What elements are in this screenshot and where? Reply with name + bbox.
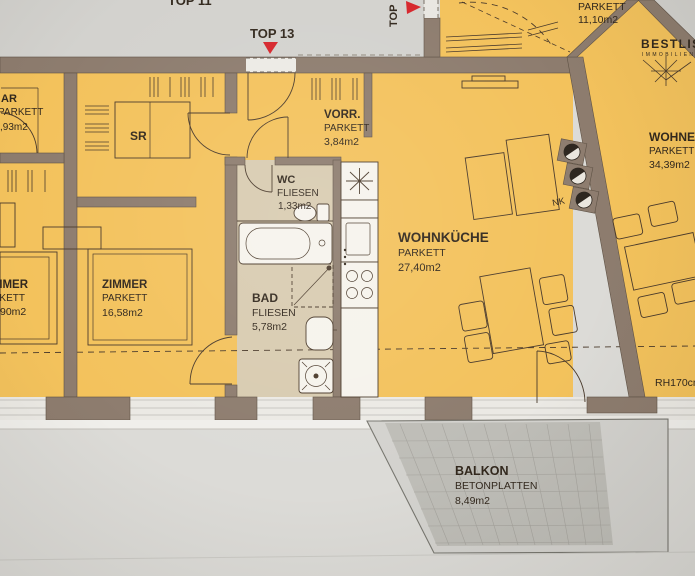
neighbor-area-label: 11,10m2 [578,14,618,26]
washbasin [306,317,337,350]
wall-bad-kitchen [333,160,341,397]
watermark-brand: BESTLIST [641,37,695,51]
zimmer-left-area-label: 90m2 [0,306,26,318]
wohnen-floor-label: PARKETT [649,146,694,157]
wall-ar-bottom [0,153,64,163]
kitchen-sink [341,218,378,262]
wall-sr-bottom [77,197,196,207]
top11-label: TOP 11 [168,0,212,8]
ar-name-label: AR [1,93,17,105]
corridor-area [0,0,424,57]
facade-pier [313,397,360,420]
wohnkueche-area-label: 27,40m2 [398,262,441,274]
bad-name-label: BAD [252,291,278,305]
watermark-sub: IMMOBILIEN [642,52,695,58]
entrance-threshold-side [424,0,438,18]
zimmer-name-label: ZIMMER [102,279,148,291]
zimmer-left-floor-label: PARKETT [0,293,25,304]
facade-pier [215,397,257,420]
bathtub [239,223,332,264]
top13-label: TOP 13 [250,26,294,41]
washing-machine [299,359,333,393]
wc-area-label: 1,33m2 [278,201,312,212]
kitchen-counter [341,162,378,397]
balkon-name-label: BALKON [455,464,508,478]
vorr-area-label: 3,84m2 [324,136,359,148]
vorr-floor-label: PARKETT [324,123,369,134]
top-side-label: TOP [388,5,400,27]
wohnen-area-label: 34,39m2 [649,159,690,171]
balkon-area-label: 8,49m2 [455,495,490,507]
wall-sr-right-upper [225,73,237,113]
facade-pier [425,397,472,420]
wall-corridor-end [424,18,440,57]
wall-wc-top-right [275,157,341,165]
bad-floor-label: FLIESEN [252,307,296,319]
entrance-threshold-top13 [246,58,296,72]
vorr-name-label: VORR. [324,109,360,121]
wall-left-column [64,73,77,397]
zimmer-floor-label: PARKETT [102,293,147,304]
kitchen-stove [341,262,378,308]
facade-pier [587,397,657,413]
parapet-height-label: RH170cm [655,377,695,389]
ar-floor-label: PARKETT [0,107,43,118]
floorplan-photo: TOP 11 TOP 13 TOP PARKETT 11,10m2 BESTLI… [0,0,695,576]
wohnkueche-floor-label: PARKETT [398,247,446,259]
wall-bad-door-stub [225,385,237,397]
wohnen-name-label: WOHNEN [649,130,695,144]
floorplan-drawing: TOP 11 TOP 13 TOP PARKETT 11,10m2 BESTLI… [0,0,695,576]
zimmer-left-name-label: ZIMMER [0,279,29,291]
wc-name-label: WC [277,174,295,186]
wall-sr-right-lower [225,157,237,335]
sr-name-label: SR [130,129,147,143]
wc-floor-label: FLIESEN [277,188,319,199]
facade-pier [46,397,130,420]
neighbor-floor-label: PARKETT [578,1,626,13]
zimmer-area-label: 16,58m2 [102,307,143,319]
bad-area-label: 5,78m2 [252,321,287,333]
wohnkueche-name-label: WOHNKÜCHE [398,230,489,245]
ar-area-label: ,93m2 [0,122,28,133]
wall-wc-top-left [225,157,245,165]
balkon-floor-label: BETONPLATTEN [455,480,537,492]
